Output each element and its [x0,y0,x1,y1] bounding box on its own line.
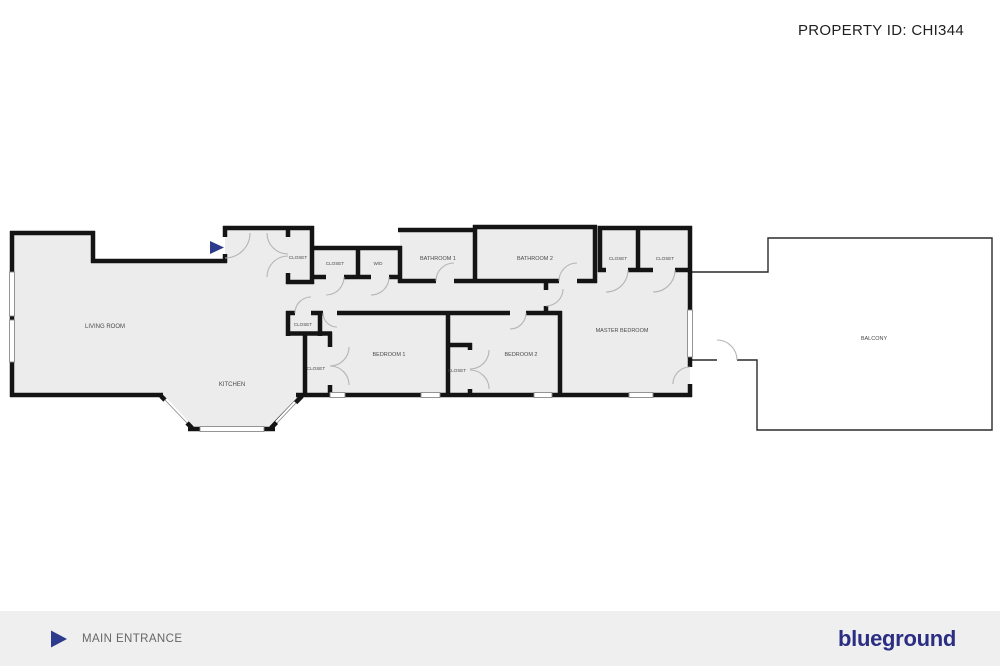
room-label: BALCONY [861,336,888,342]
play-triangle-icon [51,630,67,647]
entrance-legend-label: MAIN ENTRANCE [82,633,182,645]
room-label: LIVING ROOM [85,324,125,330]
room-label: BEDROOM 2 [504,352,537,358]
room-label: CLOSET [294,322,313,327]
room-label: BEDROOM 1 [372,352,405,358]
room-label: MASTER BEDROOM [596,328,649,334]
balcony-outline [690,238,992,430]
entrance-legend-icon [48,629,68,649]
room-label: CLOSET [326,261,345,266]
room-label: BATHROOM 2 [517,256,553,262]
entrance-arrow-icon [210,241,224,254]
room-label: CLOSET [448,368,467,373]
room-label: CLOSET [609,256,628,261]
room-label: W/D [374,261,384,266]
room-label: KITCHEN [219,382,245,388]
room-label: BATHROOM 1 [420,256,456,262]
floorplan: LIVING ROOM KITCHEN CLOSET CLOSET W/D BA… [0,0,1000,666]
brand-logo: blueground [838,626,956,652]
room-label: CLOSET [307,366,326,371]
room-label: CLOSET [289,255,308,260]
footer-bar: MAIN ENTRANCE blueground [0,611,1000,666]
room-label: CLOSET [656,256,675,261]
